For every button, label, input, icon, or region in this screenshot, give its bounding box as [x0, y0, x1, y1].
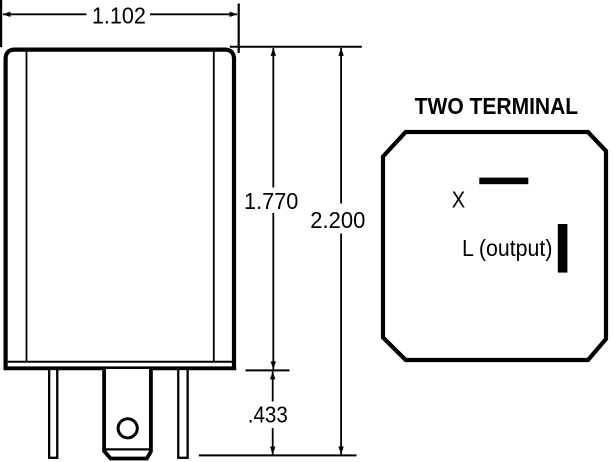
svg-text:L (output): L (output) — [462, 235, 553, 261]
svg-text:2.200: 2.200 — [310, 207, 365, 233]
svg-text:X: X — [452, 186, 465, 212]
svg-text:1.102: 1.102 — [92, 3, 146, 29]
svg-text:TWO TERMINAL: TWO TERMINAL — [415, 93, 579, 119]
svg-text:.433: .433 — [248, 401, 288, 427]
svg-text:1.770: 1.770 — [244, 188, 298, 214]
